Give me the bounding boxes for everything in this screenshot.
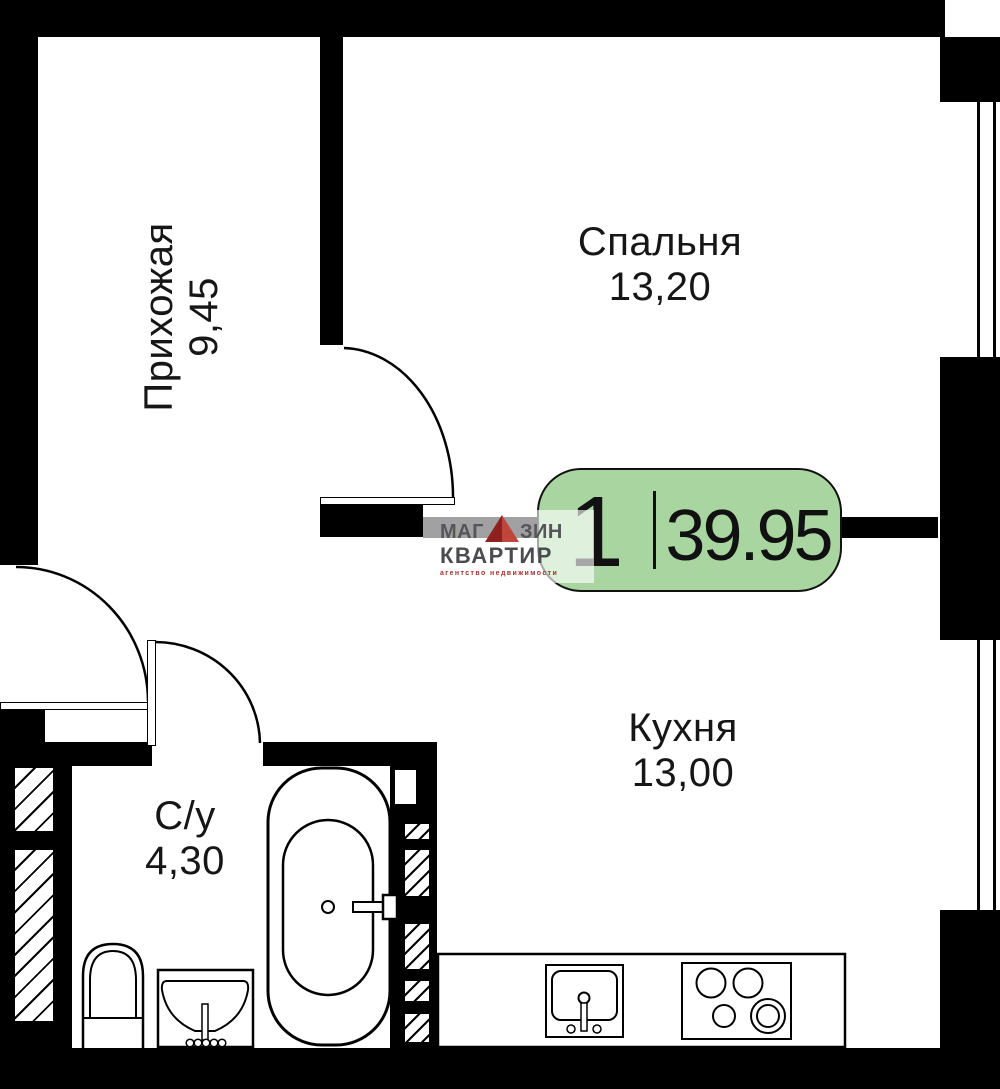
kitchen-sink (546, 965, 623, 1037)
toilet (83, 944, 143, 1048)
door-arc-bedroom (344, 348, 453, 497)
logo-word-kvartir: КВАРТИР (440, 545, 594, 567)
door-arc-bathroom (155, 642, 260, 743)
stove (682, 963, 791, 1039)
vanity-faucet (202, 1004, 208, 1040)
door-leaf-entry (0, 702, 148, 710)
kitchen-faucet (579, 993, 590, 1004)
door-leaf-bathroom (147, 640, 156, 746)
logo-text-mag: МАГ (440, 522, 484, 542)
floor-plan: Прихожая 9,45 Спальня 13,20 Кухня 13,00 … (0, 0, 1000, 1089)
door-arc-entry (16, 567, 148, 701)
logo-text-zin: ЗИН (520, 522, 563, 542)
logo-tagline: агентство недвижимости (440, 570, 594, 577)
logo-triangle-icon (485, 515, 519, 542)
badge-total-area: 39.95 (656, 500, 840, 572)
vanity-sink (158, 970, 253, 1047)
bathtub (268, 768, 397, 1045)
logo-word-magazin: МАГ ЗИН (440, 522, 594, 542)
door-leaf-bedroom (320, 497, 455, 505)
bathtub-drain (322, 901, 334, 913)
agency-logo: МАГ ЗИН КВАРТИР агентство недвижимости (423, 510, 594, 583)
